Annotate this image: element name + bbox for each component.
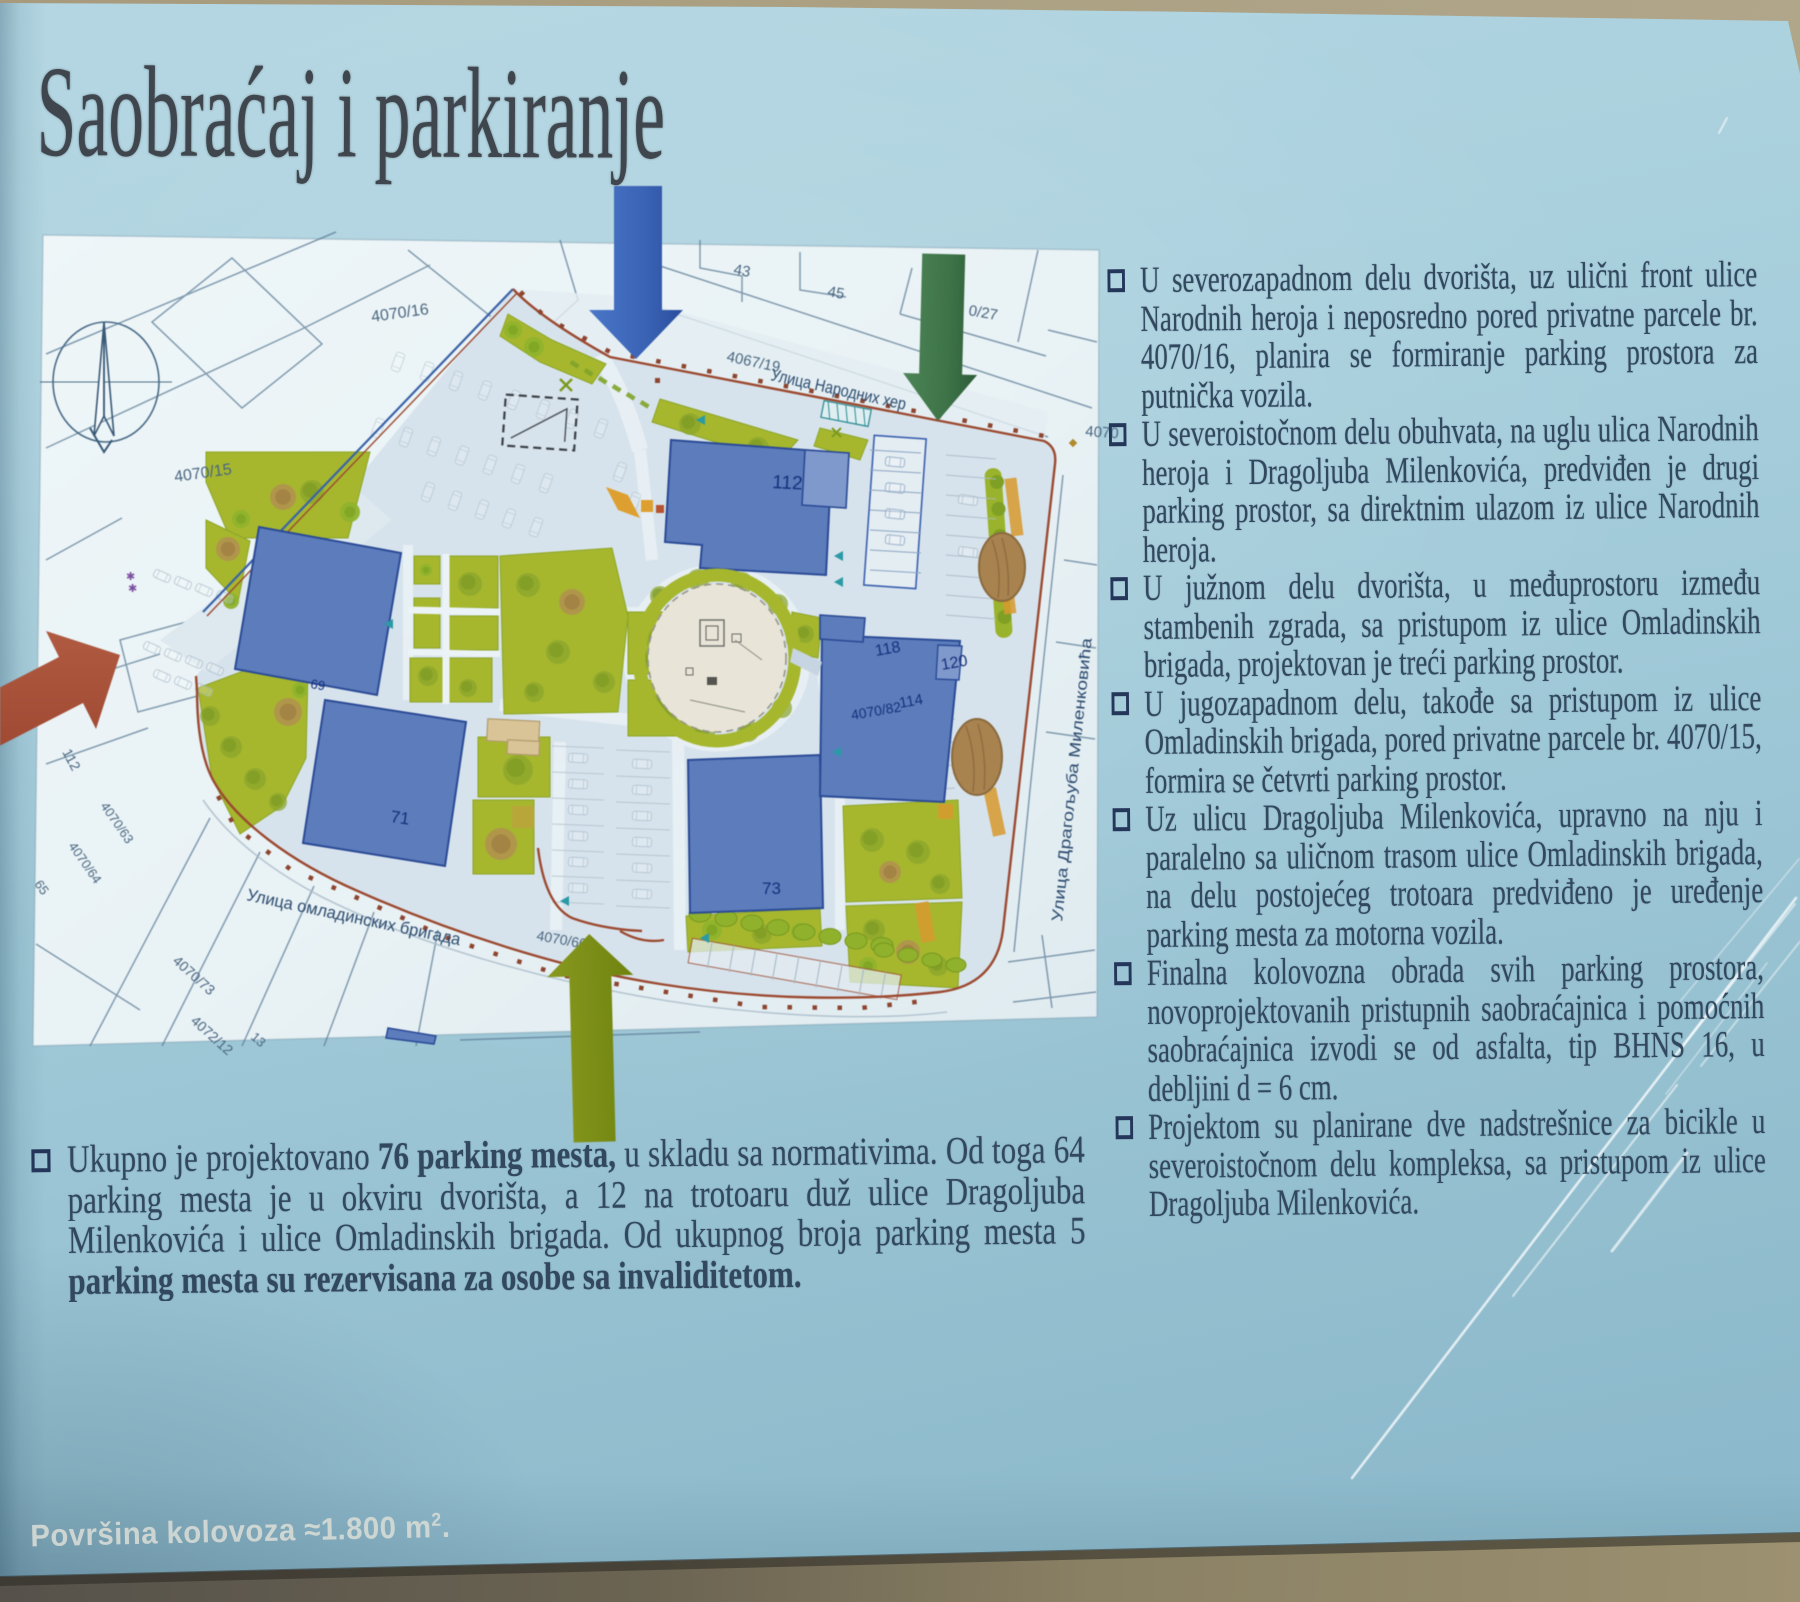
- svg-text:✱: ✱: [128, 583, 137, 595]
- svg-text:43: 43: [732, 261, 751, 281]
- svg-text:112: 112: [772, 472, 803, 495]
- svg-text:✱: ✱: [126, 571, 135, 583]
- svg-text:69: 69: [309, 676, 326, 693]
- svg-text:45: 45: [826, 283, 845, 303]
- svg-text:73: 73: [762, 879, 781, 898]
- svg-text:71: 71: [389, 807, 410, 828]
